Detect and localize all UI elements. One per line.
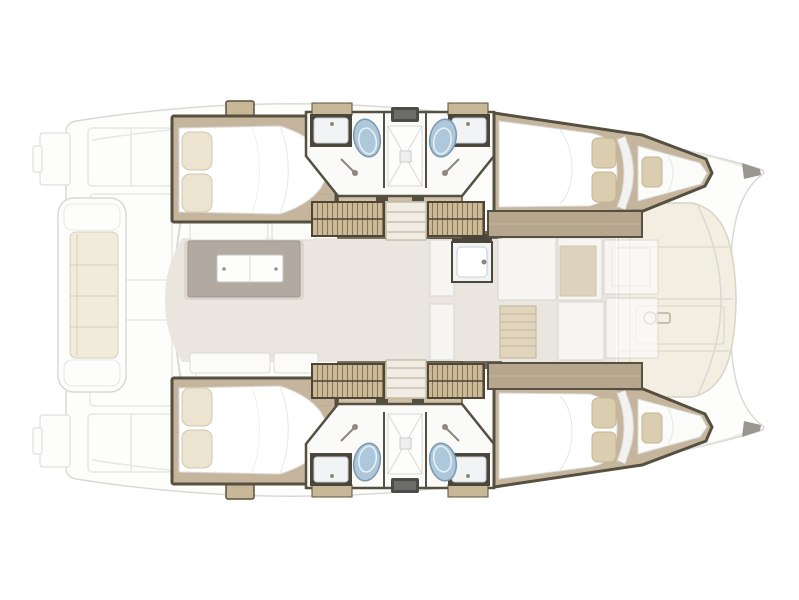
swim-steps-starboard (33, 133, 70, 185)
companionway-stairs (386, 202, 426, 240)
starboard-hull (172, 101, 712, 240)
port-hull (172, 360, 712, 499)
shower-icon (388, 126, 422, 186)
galley-sink (452, 234, 492, 282)
bathroom (306, 103, 494, 196)
washbasin-icon (310, 103, 352, 147)
pillow (592, 138, 616, 168)
salon-sofa-aft (190, 353, 318, 373)
dining-table (184, 240, 304, 300)
floor-plan-canvas (0, 0, 799, 600)
galley-counter-wood (560, 246, 596, 296)
pillow (182, 174, 212, 212)
pillow (182, 132, 212, 170)
swim-steps-port (33, 415, 70, 467)
companionway-ladder (500, 306, 536, 358)
aft-bench (58, 198, 126, 392)
pillow (592, 172, 616, 202)
catamaran-floor-plan (0, 0, 799, 600)
salon (165, 221, 658, 373)
hull-walkway (488, 211, 642, 237)
pillow (642, 157, 662, 187)
roof-hatch (391, 107, 419, 122)
salon-sofa-forward (190, 221, 316, 240)
